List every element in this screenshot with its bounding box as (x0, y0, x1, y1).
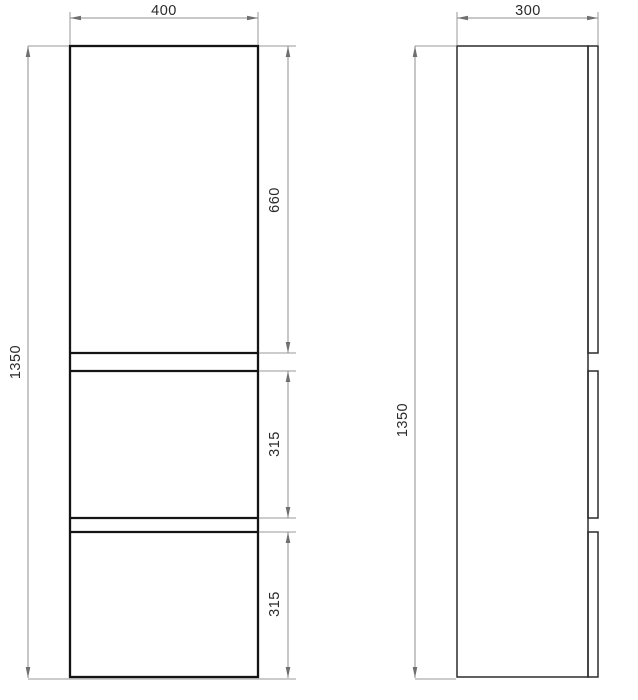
arrow-down-icon (286, 667, 291, 678)
front-width-label: 400 (151, 3, 177, 19)
drawer1-height-label: 315 (267, 431, 283, 457)
dimension-front-width: 400 (70, 3, 258, 45)
dimension-side-depth: 300 (457, 3, 598, 45)
front-height-label: 1350 (8, 345, 24, 379)
arrow-left-icon (457, 16, 468, 21)
arrow-up-icon (286, 371, 291, 382)
arrow-up-icon (413, 46, 418, 57)
arrow-down-icon (413, 667, 418, 678)
dimension-door-height: 660 (259, 46, 296, 353)
side-view-drawer1-front-panel (588, 371, 598, 518)
cabinet-dimension-drawing: 400 300 1350 660 315 (0, 0, 638, 700)
side-height-label: 1350 (395, 403, 411, 437)
side-view-carcass-outline (457, 46, 588, 677)
side-view-drawer2-front-panel (588, 532, 598, 677)
drawer2-height-label: 315 (267, 591, 283, 617)
arrow-right-icon (587, 16, 598, 21)
side-view (457, 46, 598, 677)
dimension-front-height: 1350 (8, 46, 296, 679)
door-height-label: 660 (267, 187, 283, 213)
arrow-left-icon (70, 16, 81, 21)
dimension-side-height: 1350 (395, 46, 456, 679)
side-depth-label: 300 (515, 3, 541, 19)
dimension-drawer1-height: 315 (259, 371, 296, 518)
arrow-up-icon (286, 532, 291, 543)
front-view-cabinet-outline (70, 46, 258, 677)
arrow-right-icon (247, 16, 258, 21)
arrow-down-icon (286, 342, 291, 353)
side-view-door-front-panel (588, 46, 598, 353)
arrow-up-icon (286, 46, 291, 57)
front-view (70, 46, 258, 677)
dimension-drawer2-height: 315 (259, 532, 296, 678)
arrow-down-icon (26, 667, 31, 678)
arrow-up-icon (26, 46, 31, 57)
arrow-down-icon (286, 507, 291, 518)
technical-drawing-canvas: 400 300 1350 660 315 (0, 0, 638, 700)
